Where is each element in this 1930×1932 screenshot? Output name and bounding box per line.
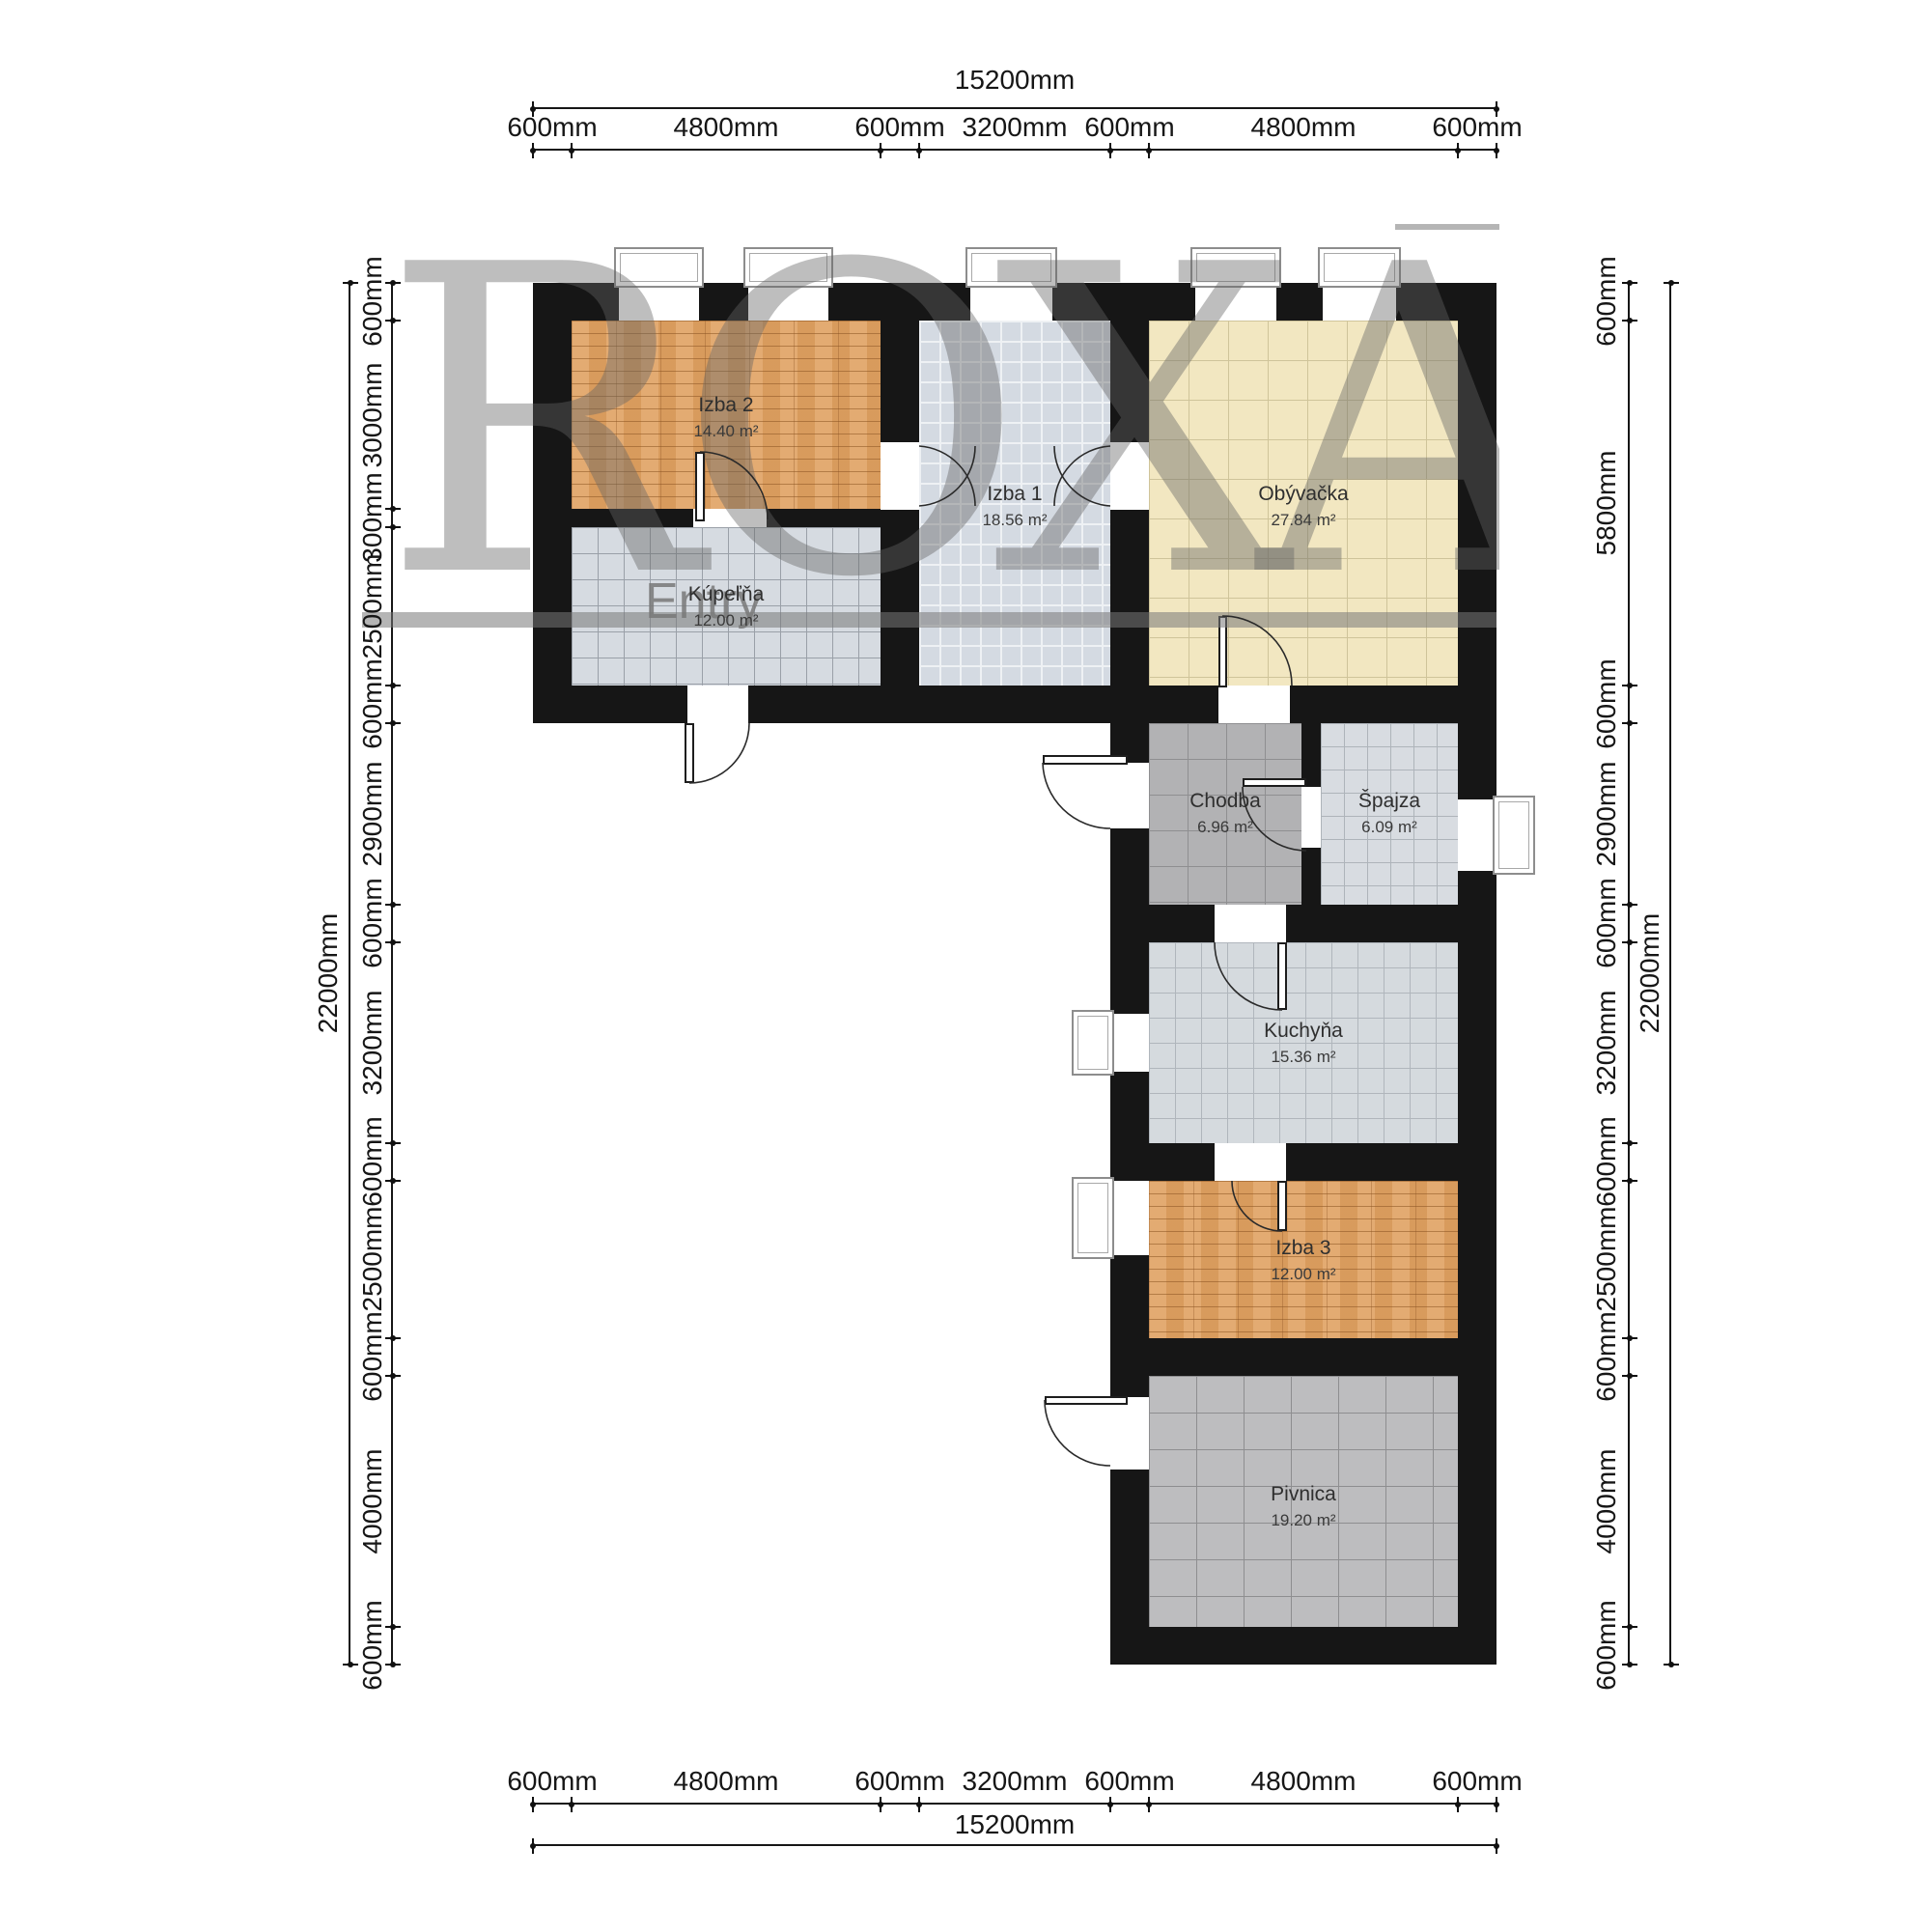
dim-label: 600mm bbox=[507, 1766, 597, 1797]
door-leaf-chodba-entry bbox=[1043, 755, 1128, 765]
dim-label: 5800mm bbox=[1591, 451, 1622, 556]
room-area: 6.96 m² bbox=[1149, 818, 1301, 837]
room-area: 14.40 m² bbox=[572, 422, 881, 441]
floor-plan-canvas: ROXAN Entry bbox=[0, 0, 1930, 1932]
dim-label: 3200mm bbox=[963, 1766, 1068, 1797]
door-opening-kupelna-entry bbox=[687, 686, 748, 723]
dim-label: 600mm bbox=[1432, 112, 1522, 143]
room-label-spajza: Špajza 6.09 m² bbox=[1321, 790, 1458, 837]
dim-label: 2500mm bbox=[357, 1207, 388, 1312]
room-label-kuchyna: Kuchyňa 15.36 m² bbox=[1149, 1020, 1458, 1067]
room-label-obyvacka: Obývačka 27.84 m² bbox=[1149, 483, 1458, 530]
window-opening-spajza bbox=[1458, 799, 1496, 871]
room-area: 15.36 m² bbox=[1149, 1048, 1458, 1067]
dim-label: 2900mm bbox=[357, 762, 388, 867]
dim-label: 2500mm bbox=[357, 554, 388, 659]
room-name: Špajza bbox=[1321, 790, 1458, 813]
dim-label: 600mm bbox=[357, 878, 388, 967]
dim-label: 4800mm bbox=[1251, 112, 1357, 143]
door-leaf-pivnica-entry bbox=[1045, 1396, 1128, 1405]
dim-line-top-segments bbox=[533, 149, 1496, 151]
room-label-pivnica: Pivnica 19.20 m² bbox=[1149, 1483, 1458, 1530]
room-name: Pivnica bbox=[1149, 1483, 1458, 1506]
room-area: 19.20 m² bbox=[1149, 1511, 1458, 1530]
door-arc-chodba-entry bbox=[1043, 763, 1110, 828]
dim-line-left-overall bbox=[349, 283, 350, 1665]
dim-line-right-segments bbox=[1628, 283, 1630, 1665]
window-icon bbox=[965, 247, 1057, 288]
dim-label: 600mm bbox=[1591, 878, 1622, 967]
room-name: Kuchyňa bbox=[1149, 1020, 1458, 1043]
dim-line-left-segments bbox=[391, 283, 393, 1665]
dim-line-bottom-segments bbox=[533, 1803, 1496, 1805]
door-opening-izba2-izba1 bbox=[881, 442, 919, 510]
dim-label: 600mm bbox=[1591, 1311, 1622, 1401]
window-opening-kuchyna bbox=[1110, 1014, 1149, 1072]
dim-label: 600mm bbox=[357, 658, 388, 748]
window-icon bbox=[743, 247, 833, 288]
door-opening-chodba-kuchyna bbox=[1215, 905, 1286, 942]
dim-label: 600mm bbox=[1432, 1766, 1522, 1797]
dim-label: 300mm bbox=[357, 472, 388, 562]
room-area: 12.00 m² bbox=[1149, 1265, 1458, 1284]
dim-label: 3200mm bbox=[357, 991, 388, 1096]
room-area: 18.56 m² bbox=[919, 511, 1110, 530]
dim-line-top-overall bbox=[533, 107, 1496, 109]
room-area: 27.84 m² bbox=[1149, 511, 1458, 530]
dim-label: 600mm bbox=[1591, 658, 1622, 748]
room-label-kupelna: Kúpeľňa 12.00 m² bbox=[572, 583, 881, 630]
door-opening-izba1-obyvacka bbox=[1110, 442, 1149, 510]
room-label-izba2: Izba 2 14.40 m² bbox=[572, 394, 881, 441]
dim-label: 2500mm bbox=[1591, 1207, 1622, 1312]
door-leaf-izba2 bbox=[695, 452, 705, 521]
dim-label: 600mm bbox=[1084, 1766, 1174, 1797]
room-name: Obývačka bbox=[1149, 483, 1458, 506]
dim-label: 4000mm bbox=[357, 1449, 388, 1554]
door-opening-chodba-entry bbox=[1110, 763, 1149, 828]
room-label-chodba: Chodba 6.96 m² bbox=[1149, 790, 1301, 837]
window-icon bbox=[614, 247, 704, 288]
dim-label-total-right: 22000mm bbox=[1635, 913, 1665, 1034]
dim-label-total-bottom: 15200mm bbox=[955, 1809, 1076, 1840]
window-icon bbox=[1493, 796, 1535, 875]
dim-label: 600mm bbox=[854, 1766, 944, 1797]
dim-label: 4800mm bbox=[1251, 1766, 1357, 1797]
dim-line-bottom-overall bbox=[533, 1844, 1496, 1846]
dim-label: 2900mm bbox=[1591, 762, 1622, 867]
window-icon bbox=[1072, 1010, 1114, 1076]
dim-label: 3200mm bbox=[963, 112, 1068, 143]
dim-line-right-overall bbox=[1669, 283, 1671, 1665]
door-opening-chodba-spajza bbox=[1301, 787, 1321, 848]
room-name: Izba 1 bbox=[919, 483, 1110, 506]
window-opening-izba3 bbox=[1110, 1181, 1149, 1255]
dim-label: 600mm bbox=[357, 1116, 388, 1206]
dim-label: 4800mm bbox=[674, 112, 779, 143]
dim-label: 600mm bbox=[1591, 1116, 1622, 1206]
room-area: 12.00 m² bbox=[572, 611, 881, 630]
door-arc-kupelna-entry bbox=[689, 723, 749, 783]
dim-label: 3200mm bbox=[1591, 991, 1622, 1096]
room-label-izba3: Izba 3 12.00 m² bbox=[1149, 1237, 1458, 1284]
watermark-top-bar bbox=[1395, 224, 1499, 230]
dim-label: 600mm bbox=[507, 112, 597, 143]
dim-label: 600mm bbox=[854, 112, 944, 143]
door-leaf-spajza bbox=[1243, 778, 1306, 787]
window-icon bbox=[1318, 247, 1401, 288]
door-arc-pivnica-entry bbox=[1045, 1400, 1110, 1466]
window-icon bbox=[1072, 1177, 1114, 1259]
dim-label: 600mm bbox=[1084, 112, 1174, 143]
door-leaf-kuchyna bbox=[1277, 942, 1287, 1010]
dim-label: 3000mm bbox=[357, 363, 388, 468]
dim-label: 600mm bbox=[357, 256, 388, 346]
room-name: Chodba bbox=[1149, 790, 1301, 813]
room-area: 6.09 m² bbox=[1321, 818, 1458, 837]
dim-label-total-left: 22000mm bbox=[313, 913, 344, 1034]
dim-label: 600mm bbox=[357, 1600, 388, 1690]
dim-label: 4000mm bbox=[1591, 1449, 1622, 1554]
room-label-izba1: Izba 1 18.56 m² bbox=[919, 483, 1110, 530]
room-name: Kúpeľňa bbox=[572, 583, 881, 606]
window-icon bbox=[1190, 247, 1281, 288]
room-name: Izba 2 bbox=[572, 394, 881, 417]
watermark-underline-bar bbox=[362, 612, 1496, 628]
door-leaf-kupelna-entry bbox=[685, 723, 694, 783]
dim-label: 600mm bbox=[357, 1311, 388, 1401]
dim-label-total-top: 15200mm bbox=[955, 65, 1076, 96]
door-opening-pivnica-entry bbox=[1110, 1397, 1149, 1470]
door-opening-obyvacka-chodba bbox=[1218, 686, 1290, 723]
dim-label: 600mm bbox=[1591, 1600, 1622, 1690]
door-leaf-izba3 bbox=[1277, 1181, 1287, 1231]
dim-label: 4800mm bbox=[674, 1766, 779, 1797]
dim-label: 600mm bbox=[1591, 256, 1622, 346]
door-opening-kuchyna-izba3 bbox=[1215, 1143, 1286, 1181]
room-name: Izba 3 bbox=[1149, 1237, 1458, 1260]
